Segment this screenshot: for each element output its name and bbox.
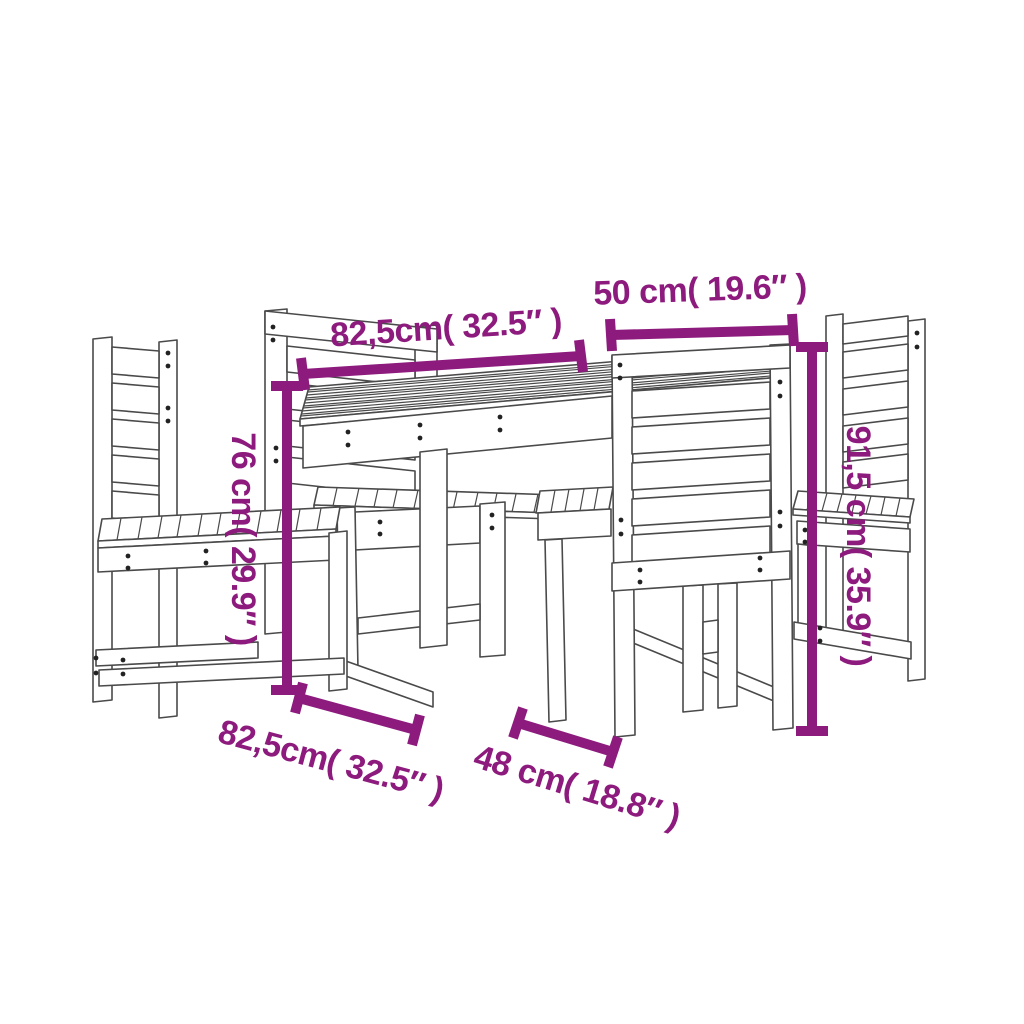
dimension-chair-width: 50 cm( 19.6″ ) bbox=[593, 267, 808, 351]
dining-set-diagram: 82,5cm( 32.5″ ) 50 cm( 19.6″ ) 76 cm( 29… bbox=[0, 0, 1024, 1024]
chair-height-label: 91,5 cm( 35.9″ ) bbox=[839, 426, 877, 667]
chair-width-label: 50 cm( 19.6″ ) bbox=[593, 267, 808, 312]
chair-right-slats bbox=[632, 382, 770, 562]
table-height-label: 76 cm( 29.9″ ) bbox=[224, 432, 262, 645]
table-width-label: 82,5cm( 32.5″ ) bbox=[329, 302, 563, 355]
dimension-chair-depth: 48 cm( 18.8″ ) bbox=[469, 708, 684, 836]
chair-far-left-slats bbox=[112, 347, 159, 522]
product-dimension-diagram: 82,5cm( 32.5″ ) 50 cm( 19.6″ ) 76 cm( 29… bbox=[0, 0, 1024, 1024]
chair-depth-label: 48 cm( 18.8″ ) bbox=[469, 738, 684, 837]
dimension-table-depth: 82,5cm( 32.5″ ) bbox=[214, 683, 448, 809]
